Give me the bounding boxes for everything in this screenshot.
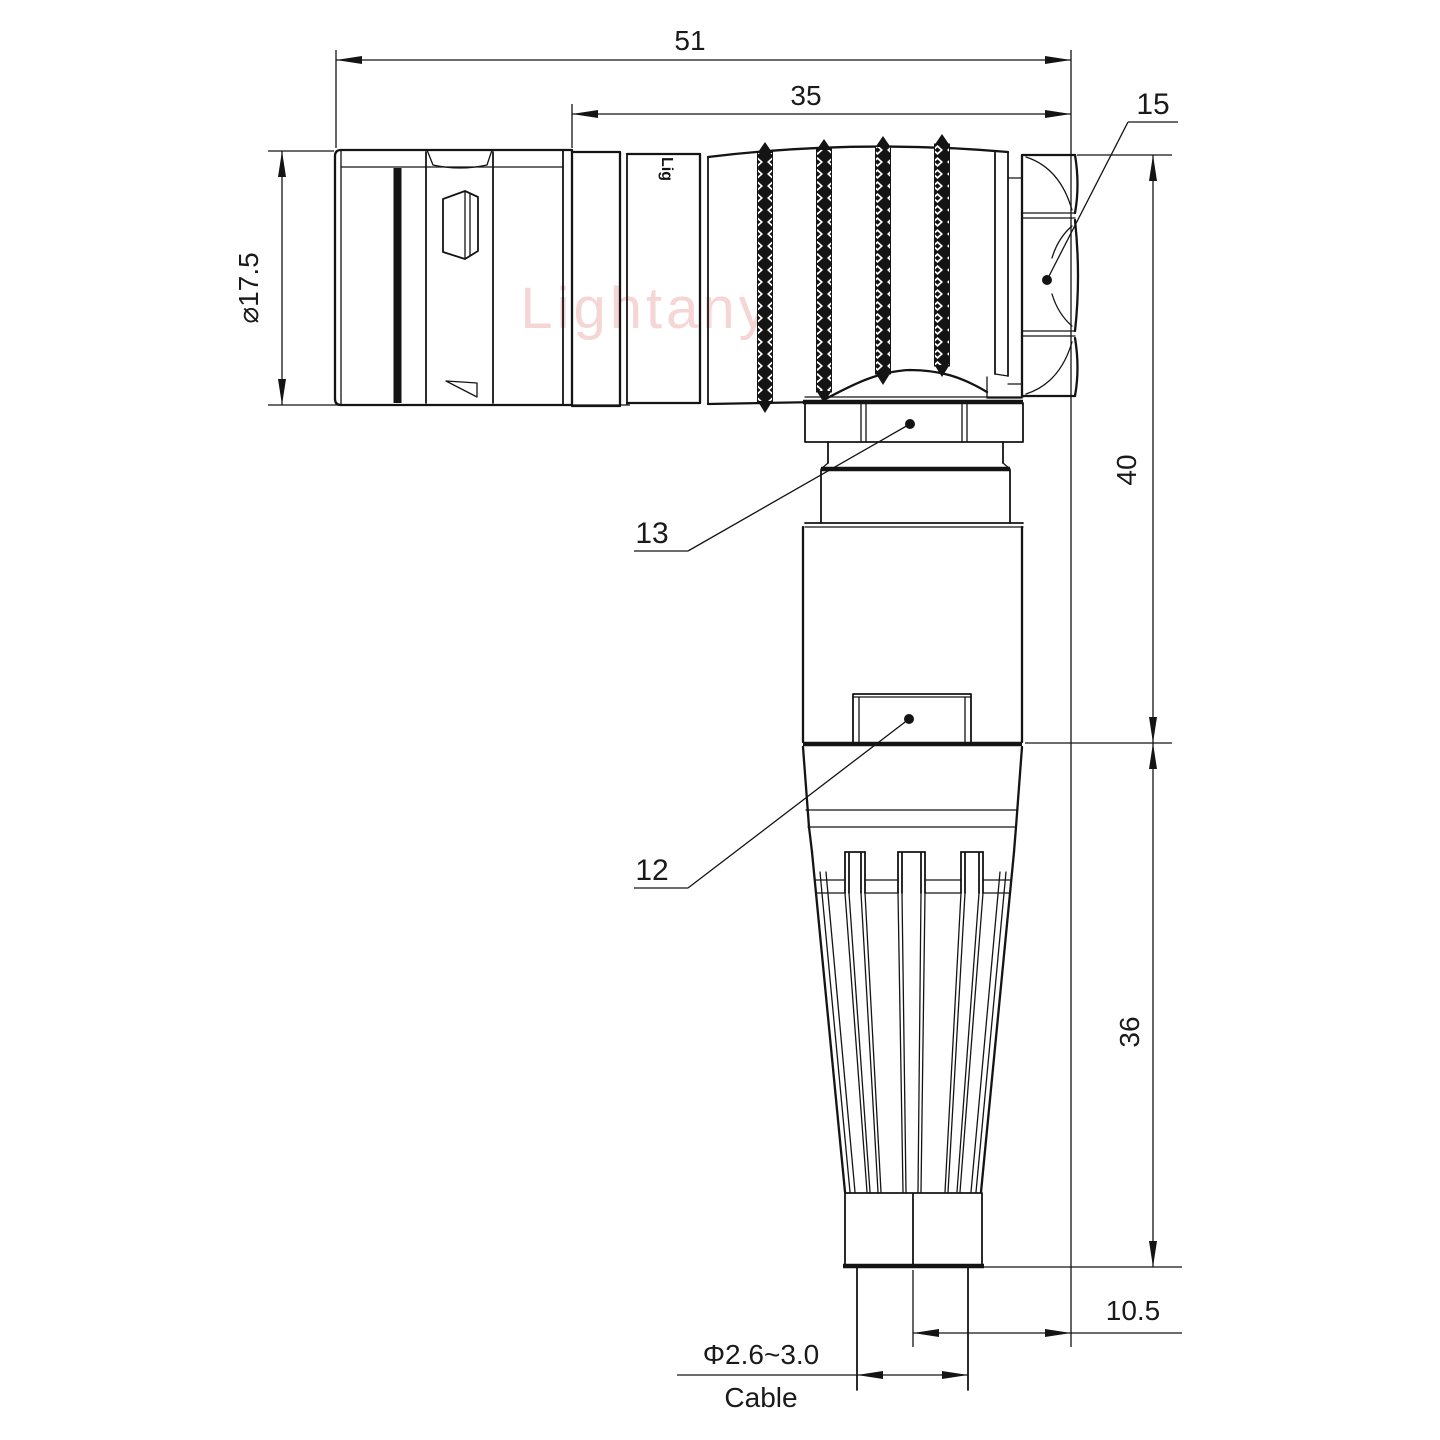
dim-36-text: 36 [1114,1016,1145,1047]
cable-bushing [843,1193,984,1266]
watermark-text: Lightany [520,276,771,341]
upper-tube [805,470,1023,527]
callout-12-latch: 12 [634,714,914,888]
callout-15-text: 15 [1136,88,1169,121]
dimension-center-offset: 10.5 [913,1270,1182,1347]
dim-40-text: 40 [1111,454,1142,485]
shell-bottom-wedge [446,381,477,397]
connector-drawing-svg: Lightany Lig [0,0,1440,1440]
dimension-heights: 40 36 [984,50,1182,1347]
knurled-grip [708,134,1022,413]
dim-17-5-text: ⌀17.5 [233,252,264,323]
shell-dark-band [394,168,402,403]
coupling-collar [803,397,1023,442]
dim-cable-diameter-text: Φ2.6~3.0 [703,1339,820,1370]
dimension-cable-diameter: Φ2.6~3.0 Cable [677,1339,968,1413]
dim-51-text: 51 [674,25,705,56]
knurl-band-4 [935,134,950,377]
main-body [803,527,1022,744]
shell-top-slot [427,150,492,168]
flute-lines [820,872,1006,1192]
technical-drawing-canvas: Lightany Lig [0,0,1440,1440]
dim-10-5-text: 10.5 [1106,1295,1161,1326]
neck-ring [821,442,1010,469]
callout-13-coupling-collar: 13 [634,419,915,551]
callout-13-text: 13 [635,517,668,550]
knurl-band-1 [758,142,773,413]
callout-12-text: 12 [635,854,668,887]
strain-relief [803,747,1022,1192]
dim-35-text: 35 [790,80,821,111]
dimension-rear-length: 35 [572,80,1071,148]
knurl-band-3 [876,136,891,385]
shell-latch-window [443,191,478,259]
dimension-overall-length: 51 [336,25,1071,148]
engraved-brand-text: Lig [658,157,675,181]
knurl-band-2 [817,139,832,403]
cable-label-text: Cable [724,1382,797,1413]
